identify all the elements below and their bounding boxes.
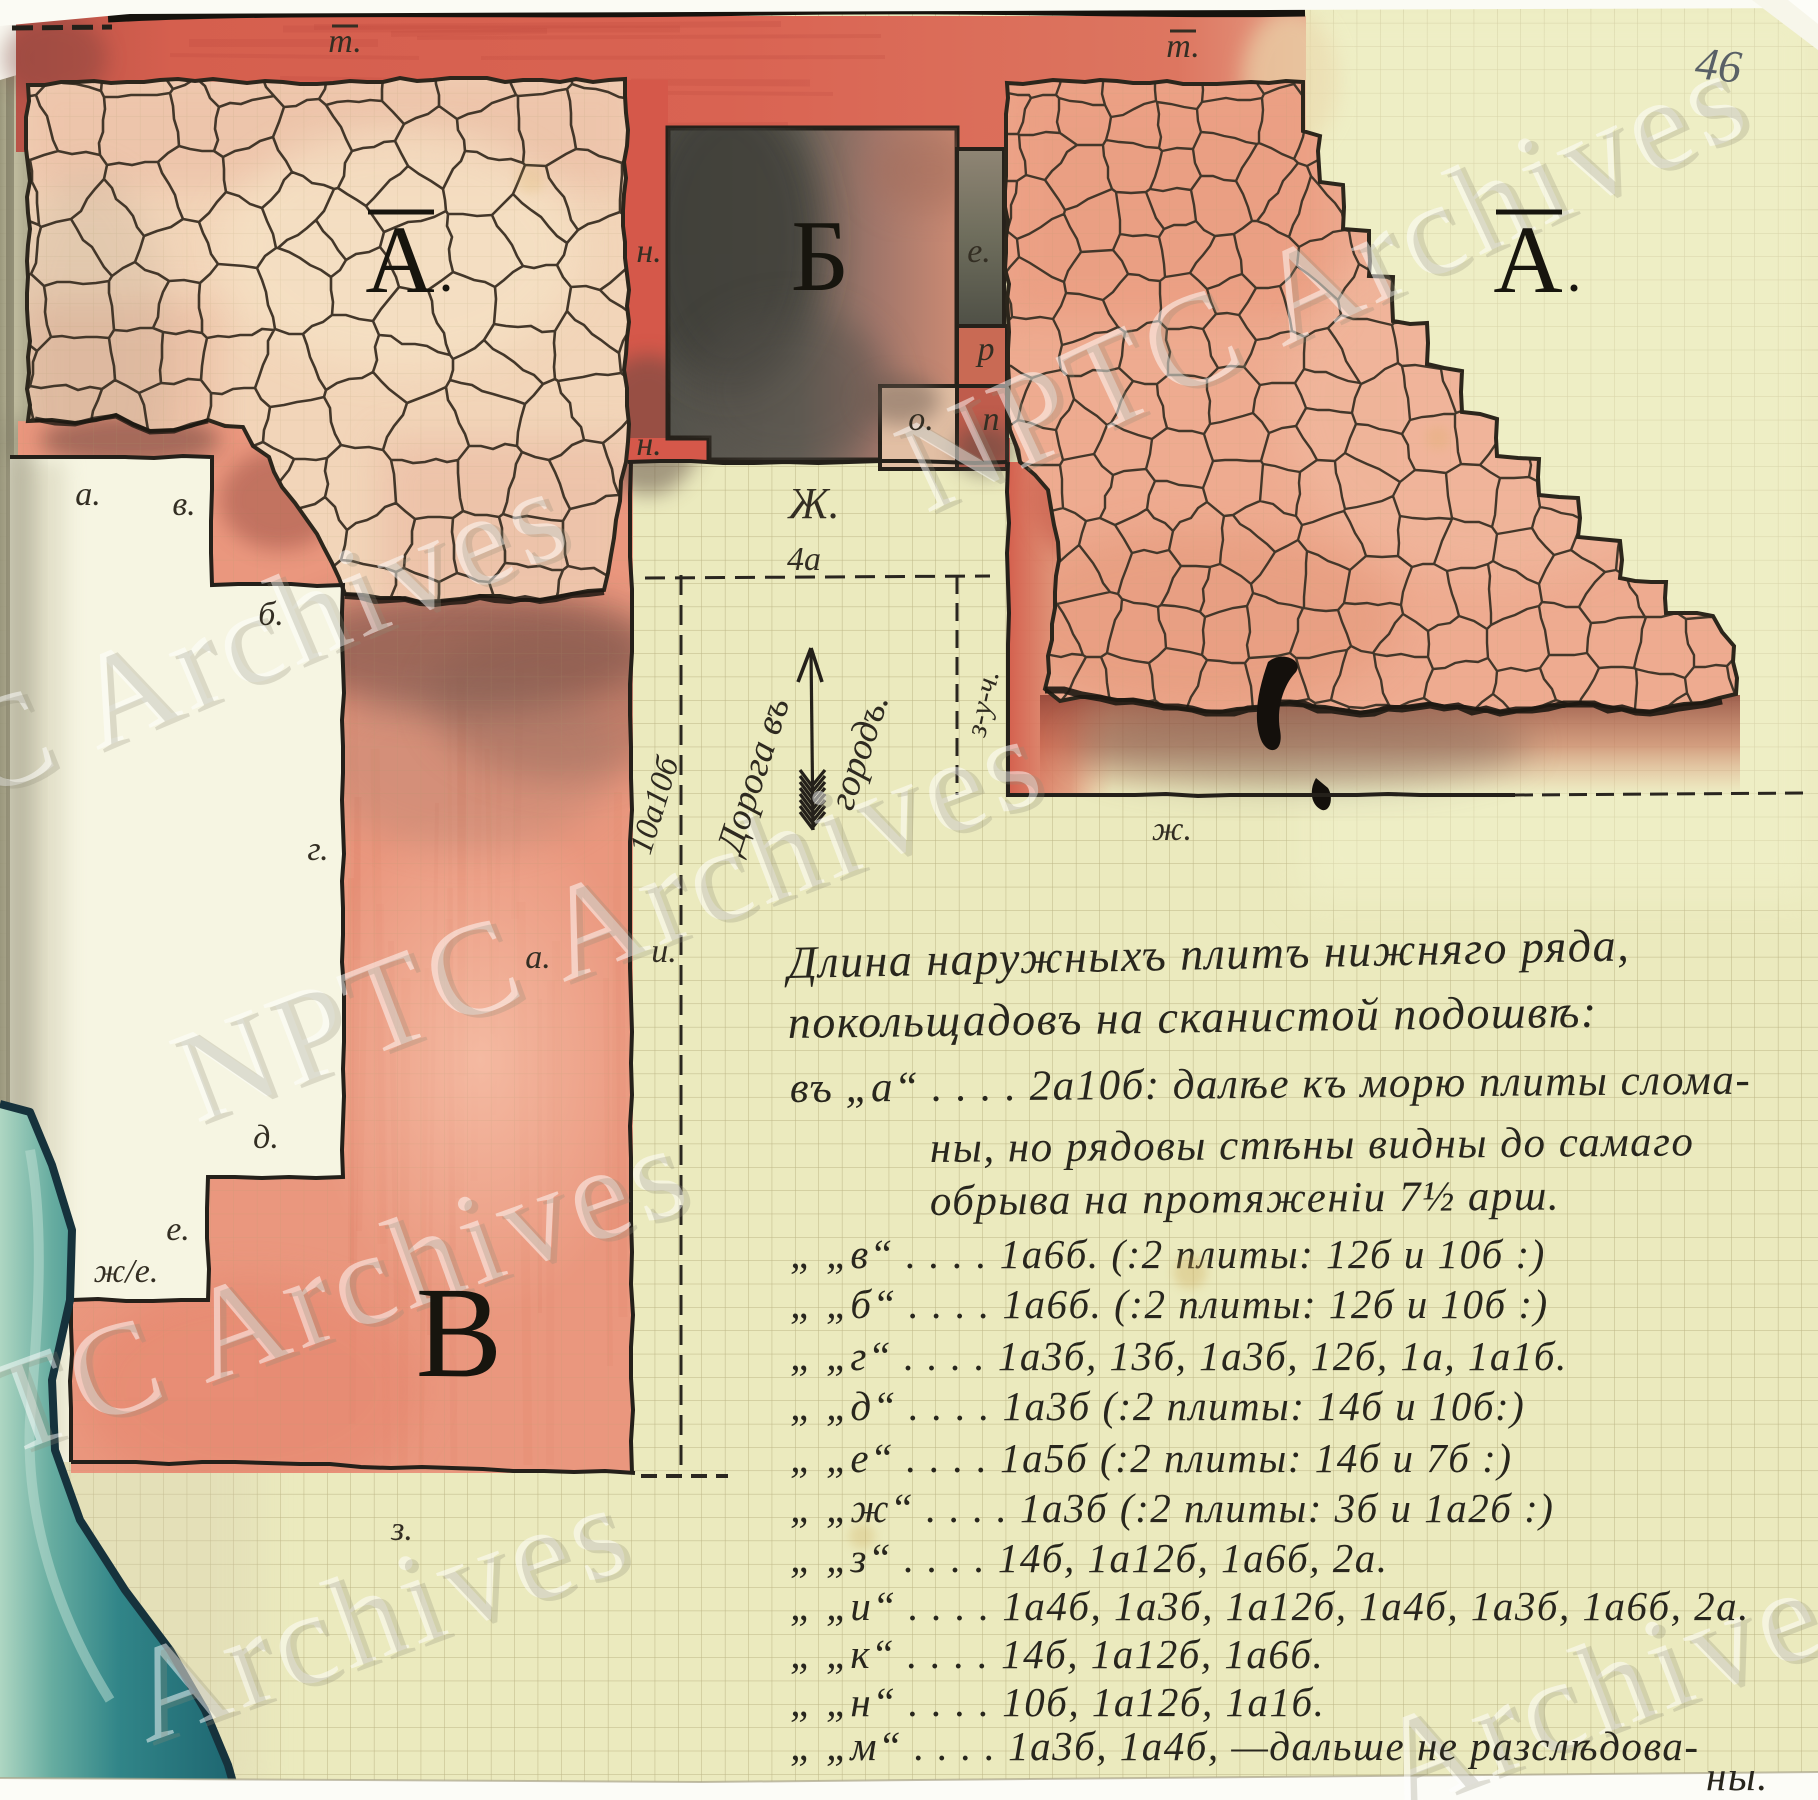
svg-text:„ „д“ . . . . 1а3б (:2 плиты:: „ „д“ . . . . 1а3б (:2 плиты: 14б и 10б:… [790,1383,1525,1429]
svg-text:г.: г. [307,831,328,868]
svg-text:в.: в. [172,486,195,523]
svg-text:о.: о. [908,401,934,438]
svg-text:т.: т. [328,23,361,60]
svg-text:н.: н. [636,426,661,463]
svg-text:въ „а“ . . . . 2а10б: далѣе к: въ „а“ . . . . 2а10б: далѣе къ морю плит… [790,1057,1752,1112]
svg-text:В: В [416,1261,503,1405]
svg-text:„ „б“ . . . . 1а6б. (:2 плиты: „ „б“ . . . . 1а6б. (:2 плиты: 12б и 10б… [790,1281,1549,1327]
svg-text:„ „в“ . . . . 1а6б. (:2 плиты: „ „в“ . . . . 1а6б. (:2 плиты: 12б и 10б… [790,1231,1546,1277]
svg-text:4а: 4а [787,541,821,578]
svg-text:„ „г“ . . . . 1а3б, 13б, 1а3б: „ „г“ . . . . 1а3б, 13б, 1а3б, 12б, 1а, … [790,1333,1568,1379]
svg-text:д.: д. [253,1119,279,1156]
svg-text:„ „з“ . . . . 14б, 1а12б, 1а6: „ „з“ . . . . 14б, 1а12б, 1а6б, 2а. [790,1535,1389,1581]
svg-text:„ „и“ . . . . 1а4б, 1а3б, 1а1: „ „и“ . . . . 1а4б, 1а3б, 1а12б, 1а4б, 1… [790,1583,1750,1629]
svg-text:и.: и. [651,933,677,970]
svg-text:„ „н“ . . . . 10б, 1а12б, 1а1: „ „н“ . . . . 10б, 1а12б, 1а1б. [790,1679,1325,1725]
svg-text:з.: з. [390,1511,413,1548]
svg-text:т.: т. [1166,28,1199,65]
svg-text:п: п [983,401,1000,438]
svg-text:А: А [365,206,434,313]
svg-text:ны, но рядовы стѣны видны до с: ны, но рядовы стѣны видны до самаго [930,1118,1695,1172]
svg-text:обрыва на протяженіи 7½ арш.: обрыва на протяженіи 7½ арш. [930,1173,1561,1225]
svg-text:ж.: ж. [1152,811,1192,848]
svg-text:а.: а. [75,476,101,513]
svg-text:н.: н. [636,233,661,270]
svg-text:б.: б. [258,596,284,633]
svg-text:р: р [976,331,995,368]
svg-text:ж/е.: ж/е. [94,1253,159,1290]
svg-text:„ „е“ . . . . 1а5б (:2 плиты:: „ „е“ . . . . 1а5б (:2 плиты: 14б и 7б :… [790,1435,1513,1481]
svg-text:46: 46 [1693,37,1744,93]
svg-text:„ „к“ . . . . 14б, 1а12б, 1а6: „ „к“ . . . . 14б, 1а12б, 1а6б. [790,1631,1324,1677]
svg-text:А: А [1493,206,1562,313]
svg-text:а.: а. [525,939,551,976]
svg-text:Б: Б [791,200,850,313]
svg-text:Ж.: Ж. [786,479,839,528]
svg-text:е.: е. [166,1211,190,1248]
svg-text:„ „м“ . . . . 1а3б, 1а4б, —да: „ „м“ . . . . 1а3б, 1а4б, —дальше не раз… [790,1723,1700,1769]
svg-text:ны.: ны. [1706,1753,1769,1799]
svg-text:„ „ж“ . . . . 1а3б (:2 плиты:: „ „ж“ . . . . 1а3б (:2 плиты: 3б и 1а2б … [790,1485,1554,1531]
svg-text:е.: е. [967,233,991,270]
